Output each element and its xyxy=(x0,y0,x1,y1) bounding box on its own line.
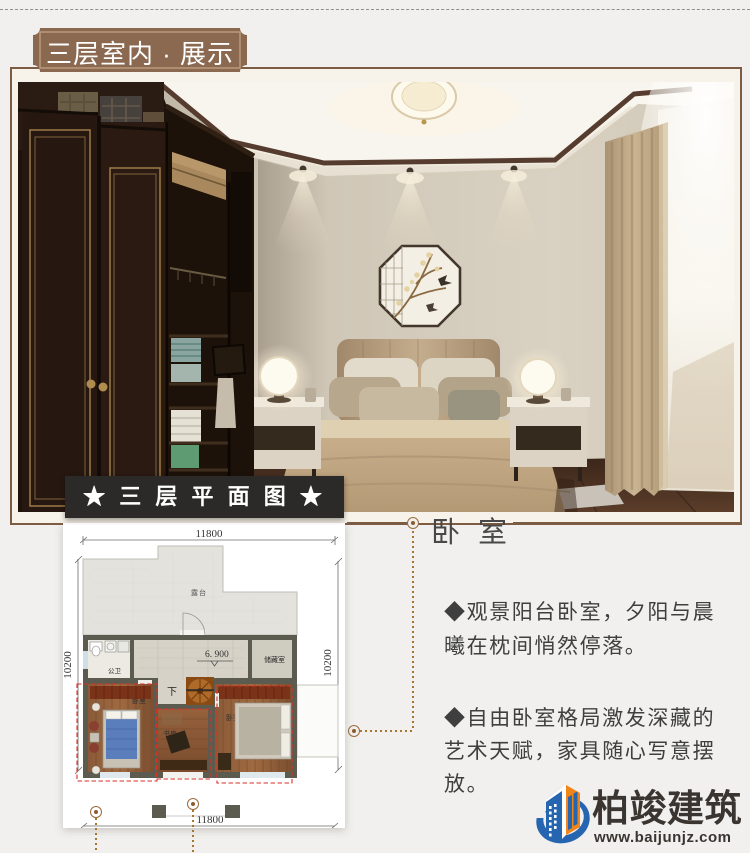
svg-text:11800: 11800 xyxy=(195,528,223,540)
svg-text:10200: 10200 xyxy=(322,649,334,677)
svg-text:下: 下 xyxy=(167,687,177,698)
svg-text:6. 900: 6. 900 xyxy=(205,650,229,660)
svg-text:10200: 10200 xyxy=(63,651,74,679)
svg-text:露台: 露台 xyxy=(191,588,207,597)
svg-text:公卫: 公卫 xyxy=(108,667,122,675)
svg-text:柏竣建筑: 柏竣建筑 xyxy=(592,787,742,829)
svg-text:www.baijunjz.com: www.baijunjz.com xyxy=(593,829,731,846)
svg-text:储藏室: 储藏室 xyxy=(264,655,285,664)
